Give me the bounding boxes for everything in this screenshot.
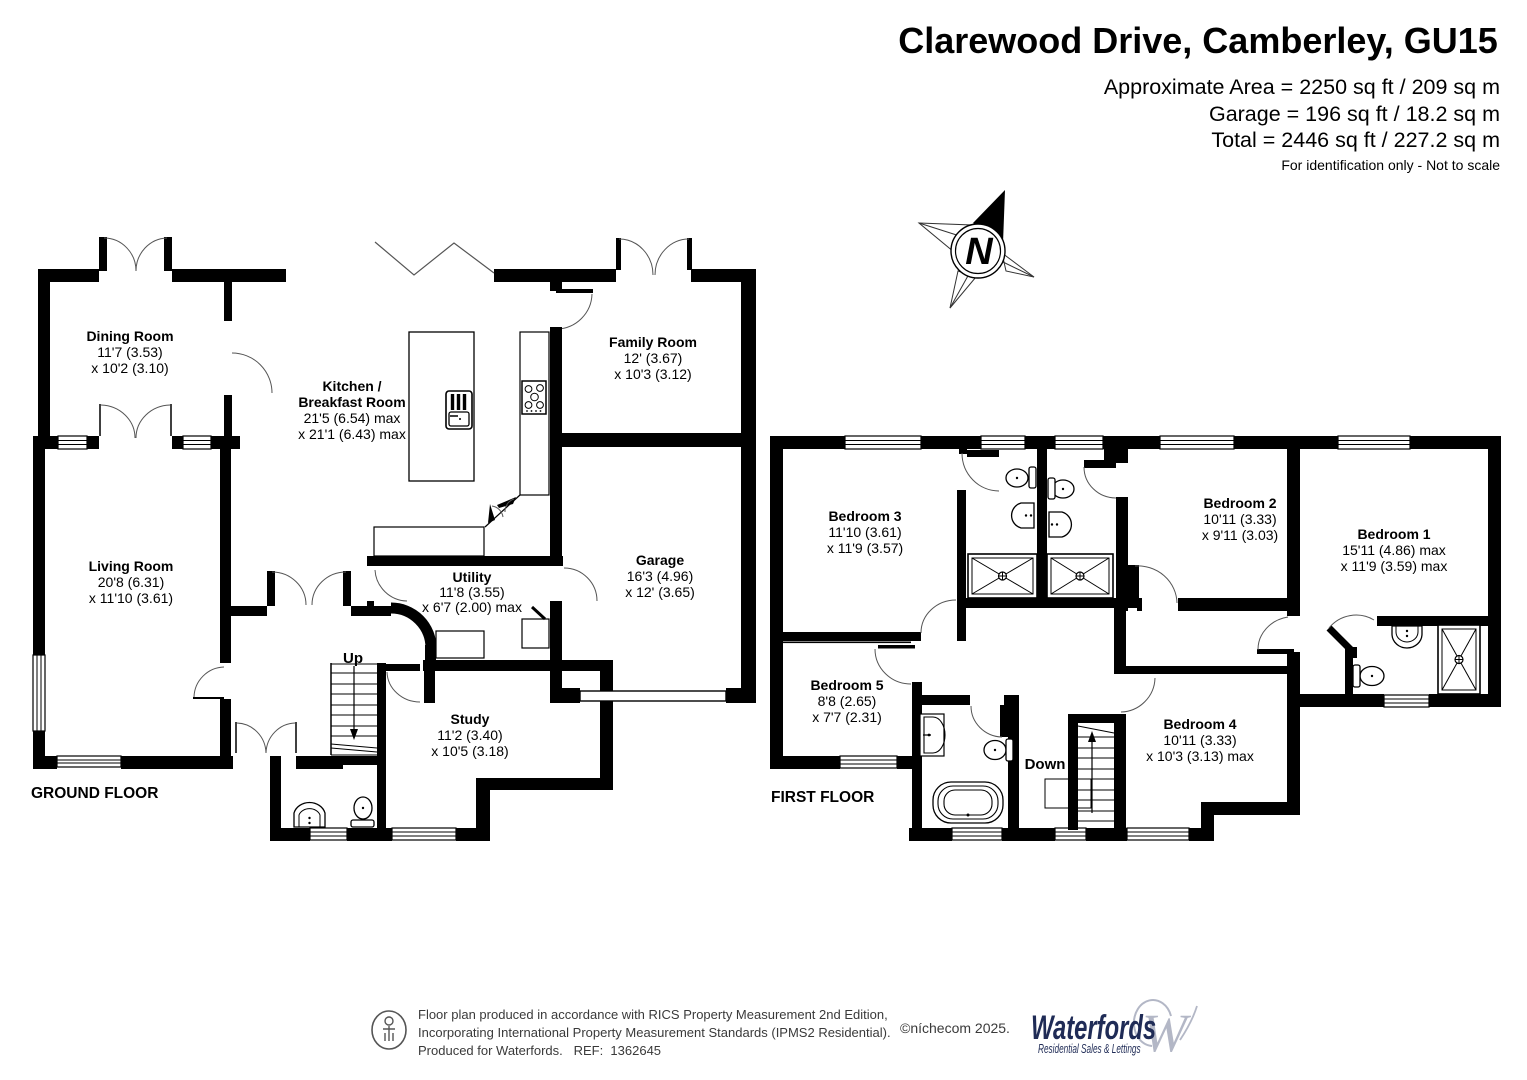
svg-text:x 10'3 (3.13) max: x 10'3 (3.13) max <box>1146 748 1254 764</box>
svg-text:©níchecom 2025.: ©níchecom 2025. <box>900 1020 1010 1036</box>
svg-text:Study: Study <box>451 711 490 727</box>
svg-text:11'8 (3.55): 11'8 (3.55) <box>439 584 504 600</box>
svg-text:Produced for Waterfords. REF: Produced for Waterfords. REF: 1362645 <box>418 1043 661 1058</box>
svg-text:Residential Sales & Lettings: Residential Sales & Lettings <box>1038 1042 1141 1056</box>
svg-text:Bedroom 2: Bedroom 2 <box>1203 495 1276 511</box>
svg-text:16'3 (4.96): 16'3 (4.96) <box>627 568 694 584</box>
svg-text:N: N <box>965 231 994 273</box>
svg-text:Garage = 196 sq ft / 18.2 sq m: Garage = 196 sq ft / 18.2 sq m <box>1209 102 1500 126</box>
svg-text:x 7'7 (2.31): x 7'7 (2.31) <box>812 709 882 725</box>
svg-text:10'11 (3.33): 10'11 (3.33) <box>1203 511 1276 527</box>
svg-text:11'10 (3.61): 11'10 (3.61) <box>828 524 901 540</box>
svg-text:Total = 2446 sq ft / 227.2 sq: Total = 2446 sq ft / 227.2 sq m <box>1211 128 1500 152</box>
svg-text:Bedroom 1: Bedroom 1 <box>1357 526 1430 542</box>
svg-text:11'7 (3.53): 11'7 (3.53) <box>97 344 162 360</box>
svg-text:For identification only - Not: For identification only - Not to scale <box>1281 157 1500 173</box>
svg-text:x 11'10 (3.61): x 11'10 (3.61) <box>89 590 173 606</box>
svg-text:FIRST FLOOR: FIRST FLOOR <box>771 789 874 806</box>
svg-text:x 21'1 (6.43) max: x 21'1 (6.43) max <box>298 426 406 442</box>
svg-text:Bedroom 3: Bedroom 3 <box>828 508 901 524</box>
svg-text:Family Room: Family Room <box>609 334 697 350</box>
svg-text:15'11 (4.86) max: 15'11 (4.86) max <box>1342 542 1446 558</box>
svg-text:Kitchen /: Kitchen / <box>322 378 381 394</box>
svg-text:Dining Room: Dining Room <box>86 328 173 344</box>
svg-text:10'11 (3.33): 10'11 (3.33) <box>1163 732 1236 748</box>
svg-text:x 10'5 (3.18): x 10'5 (3.18) <box>431 743 508 759</box>
svg-text:Living Room: Living Room <box>89 558 174 574</box>
svg-text:Breakfast Room: Breakfast Room <box>298 394 405 410</box>
svg-text:GROUND FLOOR: GROUND FLOOR <box>31 785 158 802</box>
svg-text:Utility: Utility <box>453 569 492 585</box>
svg-text:20'8 (6.31): 20'8 (6.31) <box>98 574 165 590</box>
svg-text:11'2 (3.40): 11'2 (3.40) <box>437 727 502 743</box>
svg-text:Floor plan produced in accorda: Floor plan produced in accordance with R… <box>418 1007 888 1022</box>
svg-text:x 10'3 (3.12): x 10'3 (3.12) <box>614 366 691 382</box>
svg-text:Bedroom 5: Bedroom 5 <box>810 677 883 693</box>
svg-text:Incorporating International Pr: Incorporating International Property Mea… <box>418 1025 891 1040</box>
svg-text:Garage: Garage <box>636 552 684 568</box>
svg-text:x 11'9 (3.59) max: x 11'9 (3.59) max <box>1341 558 1448 574</box>
svg-text:Bedroom 4: Bedroom 4 <box>1163 716 1236 732</box>
svg-text:8'8 (2.65): 8'8 (2.65) <box>818 693 877 709</box>
svg-text:Clarewood Drive, Camberley, GU: Clarewood Drive, Camberley, GU15 <box>898 20 1498 61</box>
svg-text:12' (3.67): 12' (3.67) <box>624 350 683 366</box>
svg-text:x 12' (3.65): x 12' (3.65) <box>625 584 695 600</box>
svg-text:Approximate Area = 2250 sq ft: Approximate Area = 2250 sq ft / 209 sq m <box>1104 75 1500 99</box>
svg-text:x 9'11 (3.03): x 9'11 (3.03) <box>1202 527 1278 543</box>
svg-text:Waterfords: Waterfords <box>1031 1009 1156 1047</box>
svg-text:x 6'7 (2.00) max: x 6'7 (2.00) max <box>422 599 522 615</box>
svg-text:x 11'9 (3.57): x 11'9 (3.57) <box>827 540 903 556</box>
svg-text:Down: Down <box>1025 756 1066 773</box>
svg-text:x 10'2 (3.10): x 10'2 (3.10) <box>91 360 168 376</box>
svg-text:21'5 (6.54) max: 21'5 (6.54) max <box>304 410 401 426</box>
